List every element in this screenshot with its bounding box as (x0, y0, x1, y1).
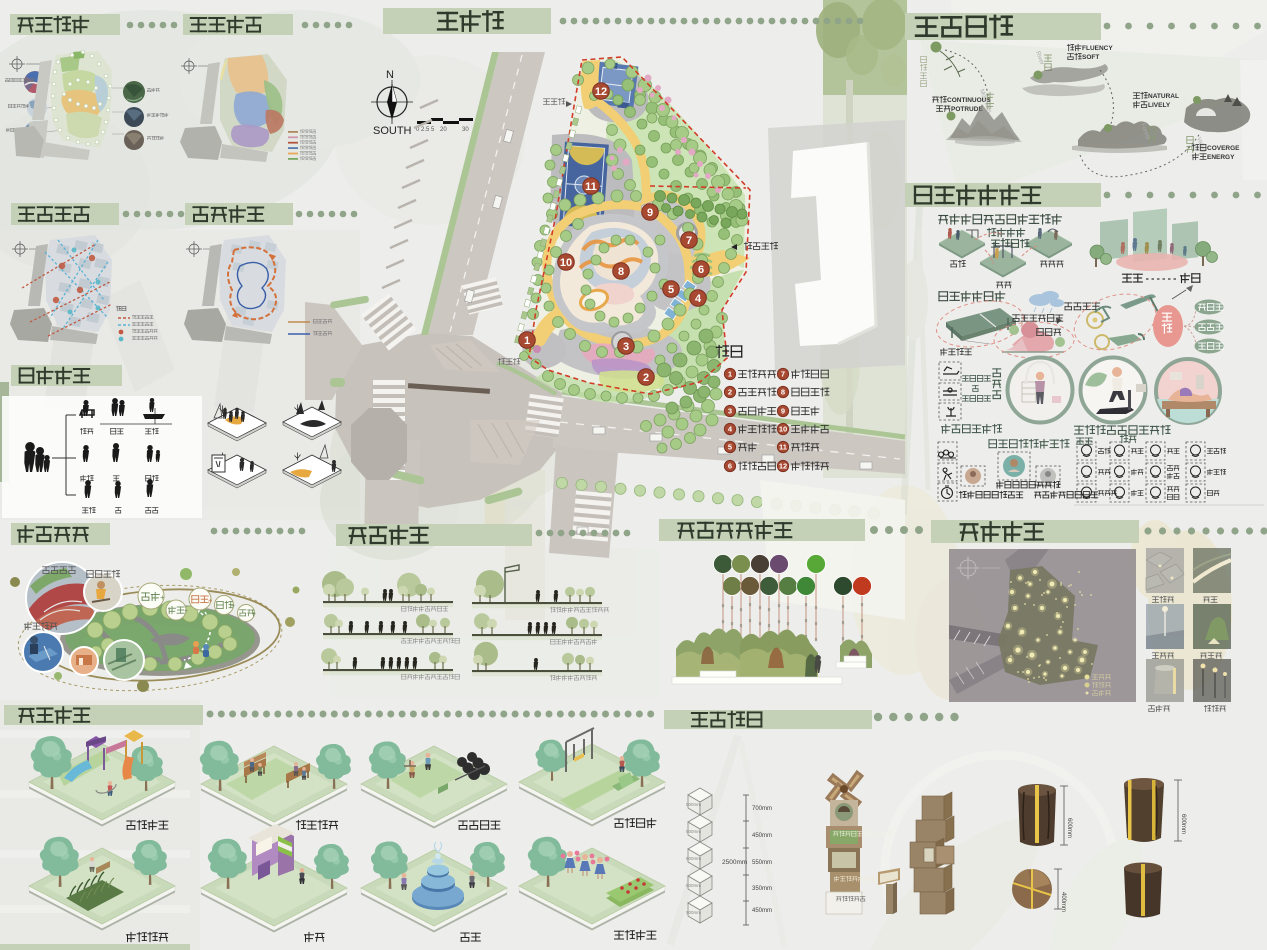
svg-text:+: + (252, 611, 256, 618)
svg-text:2500mm: 2500mm (722, 859, 747, 866)
svg-text:700mm: 700mm (752, 806, 772, 812)
svg-text:+: + (208, 596, 213, 605)
svg-text:3: 3 (728, 407, 732, 416)
svg-text:10: 10 (560, 257, 572, 269)
svg-text:550mm: 550mm (752, 860, 772, 866)
svg-text:FLUENCY: FLUENCY (1082, 45, 1113, 52)
svg-text:SOUTH: SOUTH (373, 125, 412, 137)
svg-text:4: 4 (695, 293, 702, 305)
svg-text:+: + (160, 593, 165, 602)
svg-text:11: 11 (779, 443, 787, 452)
svg-text:11: 11 (585, 181, 597, 193)
svg-text:+: + (231, 603, 235, 610)
svg-text:6: 6 (728, 462, 732, 471)
svg-text:COVERGE: COVERGE (1207, 145, 1240, 152)
svg-text:600mm: 600mm (1180, 814, 1186, 834)
svg-text:LIVELY: LIVELY (1148, 102, 1171, 109)
svg-text:400mm: 400mm (1060, 892, 1066, 912)
svg-text:9: 9 (781, 407, 785, 416)
svg-text:1: 1 (728, 370, 732, 379)
svg-text:5: 5 (728, 443, 732, 452)
svg-text:N: N (386, 69, 394, 81)
svg-text:+: + (184, 608, 188, 615)
svg-text:6: 6 (698, 264, 704, 276)
svg-text:1: 1 (524, 335, 530, 347)
svg-text:9: 9 (647, 207, 653, 219)
svg-text:5: 5 (668, 284, 674, 296)
svg-text:600mm: 600mm (1066, 818, 1072, 838)
svg-text:20: 20 (440, 127, 447, 133)
svg-text:ENERGY: ENERGY (1207, 154, 1235, 161)
svg-text:0 2.5 5: 0 2.5 5 (416, 127, 435, 133)
svg-text:500mm: 500mm (686, 829, 701, 834)
svg-text:450mm: 450mm (752, 908, 772, 914)
svg-text:7: 7 (686, 235, 692, 247)
svg-text:3: 3 (623, 341, 629, 353)
svg-text:SOFT: SOFT (1082, 54, 1099, 61)
svg-text:350mm: 350mm (752, 886, 772, 892)
svg-text:30: 30 (462, 127, 469, 133)
svg-text:500mm: 500mm (686, 910, 701, 915)
svg-text:2: 2 (728, 388, 732, 397)
svg-text:12: 12 (595, 86, 607, 98)
svg-text:8: 8 (618, 266, 624, 278)
svg-text:500mm: 500mm (686, 883, 701, 888)
svg-text:500mm: 500mm (686, 802, 701, 807)
svg-text:10: 10 (779, 425, 787, 434)
svg-text:NATURAL: NATURAL (1148, 93, 1179, 100)
svg-text:12: 12 (779, 462, 787, 471)
svg-text:7: 7 (781, 370, 785, 379)
svg-text:8: 8 (781, 388, 785, 397)
svg-text:500mm: 500mm (686, 856, 701, 861)
svg-text:2: 2 (643, 372, 649, 384)
svg-text:450mm: 450mm (752, 833, 772, 839)
